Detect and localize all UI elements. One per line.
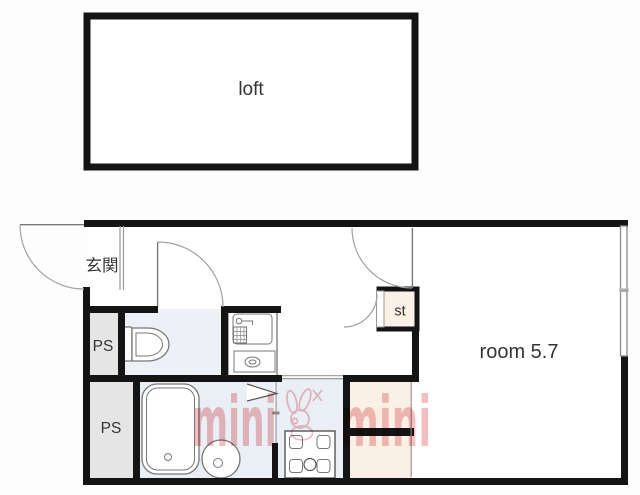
- ps-lower-label: PS: [101, 420, 122, 437]
- wall-ps2-divider: [133, 382, 140, 478]
- room-label: room 5.7: [480, 341, 559, 363]
- loft-section: loft: [87, 16, 415, 167]
- main-floor-section: 玄関 PS PS st room 5.7: [20, 220, 629, 485]
- wall-bottom: [84, 478, 628, 485]
- floor-plan-page: loft: [0, 0, 640, 495]
- toilet-icon: [123, 327, 169, 361]
- washer-pan-drain: [304, 459, 316, 471]
- watermark-text-left: mini: [192, 381, 277, 462]
- window-mullion: [620, 289, 629, 293]
- ps-upper-label: PS: [93, 338, 114, 355]
- genkan-label: 玄関: [86, 256, 119, 275]
- wall-toilet-kitchen-divider: [221, 306, 228, 382]
- wall-ps-divider: [118, 306, 125, 382]
- wall-left: [83, 287, 90, 485]
- floor-plan-canvas: loft: [0, 0, 640, 495]
- watermark-text-right: mini: [340, 382, 431, 463]
- wall-top: [84, 220, 628, 227]
- kitchen-unit-icon: [228, 309, 277, 377]
- wall-closet-top: [343, 375, 419, 382]
- wall-hall-b: [221, 306, 281, 313]
- bathtub-icon: [142, 384, 199, 474]
- window-right: [620, 226, 629, 356]
- loft-label: loft: [238, 79, 264, 100]
- storage-door-leaf: [377, 291, 385, 327]
- storage-label: st: [394, 304, 405, 320]
- bathtub-outer: [142, 384, 199, 474]
- wall-right: [621, 356, 628, 485]
